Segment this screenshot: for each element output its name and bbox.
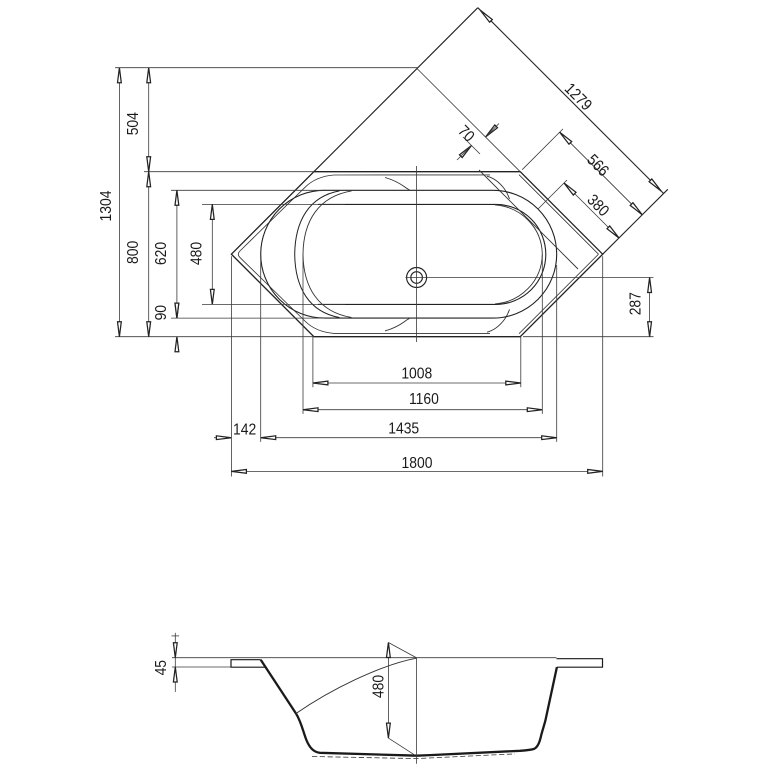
svg-text:1304: 1304 [97, 191, 115, 222]
svg-text:142: 142 [233, 421, 256, 439]
svg-text:620: 620 [152, 242, 170, 265]
svg-text:90: 90 [152, 305, 170, 320]
svg-text:45: 45 [152, 660, 170, 675]
svg-text:1800: 1800 [402, 454, 433, 472]
svg-text:1160: 1160 [409, 390, 439, 408]
svg-text:1008: 1008 [401, 364, 432, 382]
svg-text:504: 504 [124, 112, 142, 135]
svg-text:1435: 1435 [388, 420, 419, 438]
svg-text:287: 287 [627, 292, 645, 315]
svg-text:480: 480 [188, 242, 206, 265]
svg-text:480: 480 [370, 675, 388, 698]
svg-text:800: 800 [124, 241, 142, 264]
